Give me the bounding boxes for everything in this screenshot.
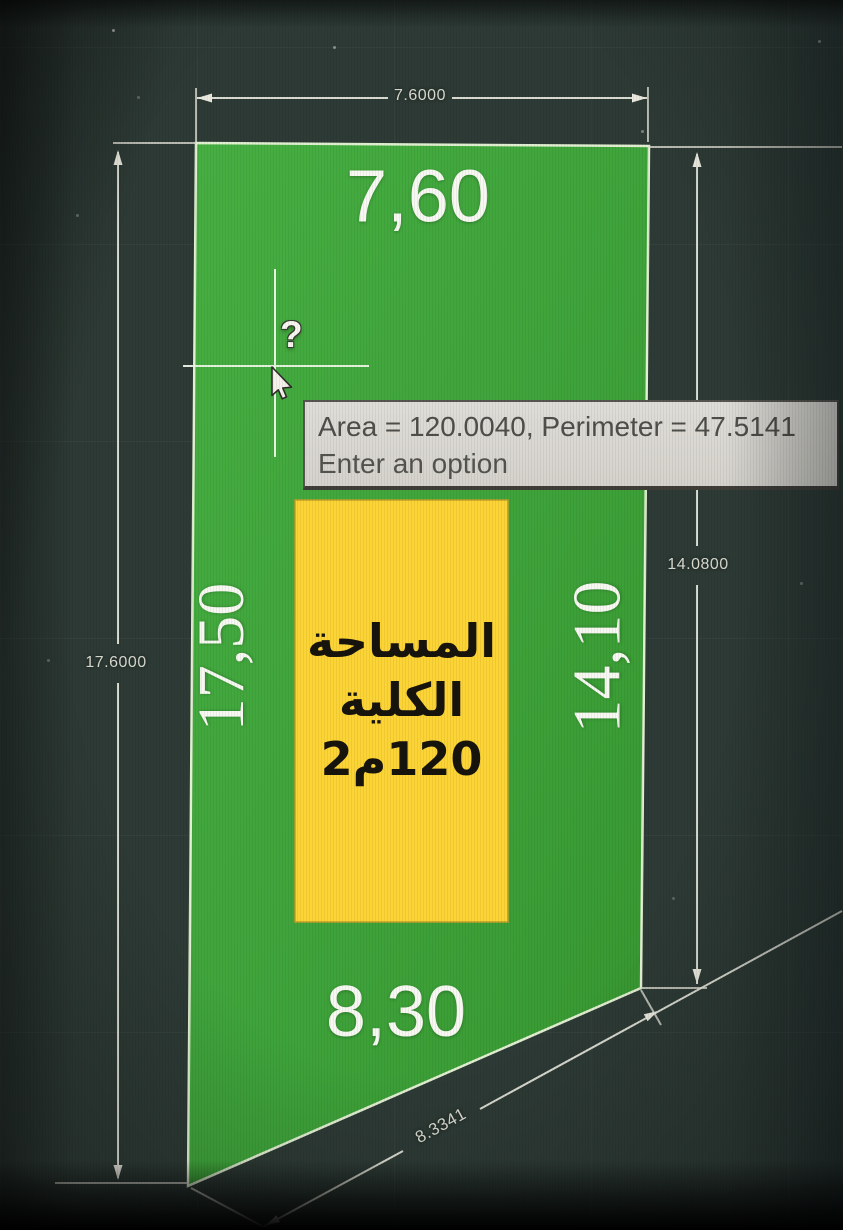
- ext-slant-left: [191, 1188, 262, 1226]
- cad-drawing-screenshot: 7.6000 17.6000 14.0800 8.3341 7,60 17,50…: [0, 0, 843, 1230]
- arrow-right-up: [693, 152, 702, 167]
- edge-label-left: 17,50: [184, 583, 260, 732]
- dim-line-slant-a: [263, 1151, 403, 1227]
- arrow-left-up: [114, 150, 123, 165]
- edge-label-bottom: 8,30: [326, 971, 466, 1053]
- area-label-text: المساحة الكلية 120م2: [295, 500, 508, 922]
- edge-label-right: 14,10: [558, 581, 637, 734]
- area-label-line1: المساحة: [307, 612, 496, 671]
- arrow-slant-left: [266, 1215, 280, 1225]
- arrow-top-left: [197, 94, 212, 103]
- command-result-tooltip: Area = 120.0040, Perimeter = 47.5141 Ent…: [303, 400, 839, 490]
- area-label-line2: الكلية: [339, 671, 464, 730]
- dim-value-top: 7.6000: [384, 87, 456, 105]
- help-question-cursor-badge: ?: [280, 314, 303, 356]
- area-label-line3: 120م2: [321, 730, 483, 789]
- edge-label-top: 7,60: [346, 154, 490, 239]
- tooltip-area-perimeter-line: Area = 120.0040, Perimeter = 47.5141: [318, 408, 827, 445]
- tooltip-prompt-line: Enter an option: [318, 445, 827, 482]
- dim-value-right: 14.0800: [661, 556, 735, 574]
- arrow-right-down: [693, 969, 702, 984]
- dim-value-left: 17.6000: [80, 654, 152, 672]
- arrow-top-right: [632, 94, 647, 103]
- arrow-left-down: [114, 1165, 123, 1180]
